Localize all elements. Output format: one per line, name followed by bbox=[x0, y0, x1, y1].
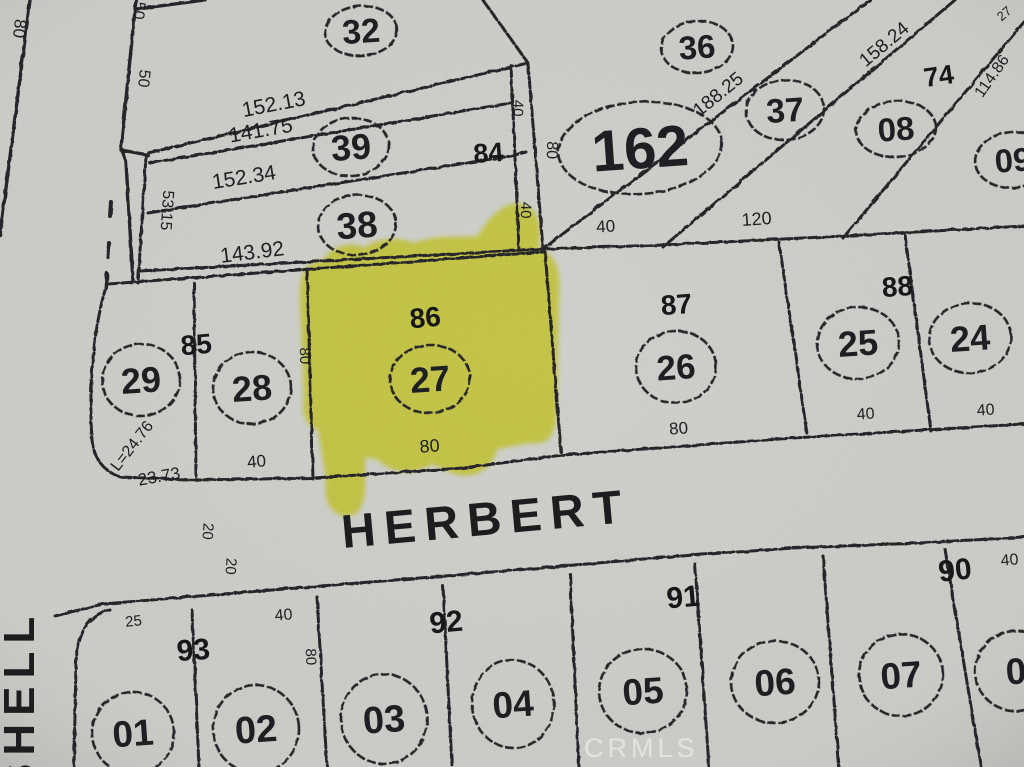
dimension-label: 40 bbox=[596, 217, 616, 237]
block-number: 86 bbox=[408, 301, 442, 335]
block-number: 87 bbox=[660, 288, 693, 321]
lot-number: 07 bbox=[879, 654, 923, 698]
lot-number: 38 bbox=[335, 204, 379, 248]
lot-number: 27 bbox=[409, 357, 452, 401]
lot-number: 162 bbox=[590, 113, 691, 185]
lot-number: 03 bbox=[362, 698, 407, 743]
dimension-label: 80 bbox=[296, 347, 314, 364]
dimension-label: 80 bbox=[669, 418, 689, 438]
dimension-label: 80 bbox=[543, 141, 561, 159]
plat-map-canvas: 3239383637080916229282726252401020304050… bbox=[0, 0, 1024, 767]
block-number: 84 bbox=[472, 137, 504, 169]
dimension-label: 80 bbox=[419, 435, 440, 456]
dimension-label: 120 bbox=[741, 208, 772, 230]
dimension-label: 40 bbox=[1000, 551, 1019, 569]
lot-number: 39 bbox=[330, 125, 373, 169]
block-number: 74 bbox=[922, 59, 956, 93]
dimension-label: 53.15 bbox=[157, 190, 177, 231]
dimension-label: 40 bbox=[246, 451, 267, 472]
lot-number: 29 bbox=[120, 358, 163, 402]
dimension-label: 20 bbox=[221, 557, 239, 575]
lot-number: 09 bbox=[993, 140, 1024, 179]
lot-number: 26 bbox=[655, 347, 697, 389]
dimension-label: 80 bbox=[9, 18, 30, 39]
block-number: 90 bbox=[937, 552, 974, 588]
dimension-label: 40 bbox=[856, 405, 875, 423]
dimension-label: 50 bbox=[134, 69, 153, 89]
lot-number: 04 bbox=[491, 683, 535, 727]
dimension-label: 20 bbox=[198, 522, 216, 540]
lot-number: 02 bbox=[234, 708, 279, 753]
dimension-label: 25 bbox=[124, 612, 142, 631]
lot-number: 06 bbox=[753, 661, 797, 705]
lot-number: 01 bbox=[111, 712, 155, 756]
block-number: 85 bbox=[179, 328, 213, 362]
dimension-label: 40 bbox=[509, 100, 527, 117]
dimension-label: 40 bbox=[274, 606, 293, 624]
block-number: 92 bbox=[428, 605, 464, 641]
lot-number: 08 bbox=[876, 109, 915, 148]
dimension-label: 40 bbox=[517, 202, 535, 219]
lot-number: 05 bbox=[621, 670, 665, 714]
watermark-layer: CRMLS bbox=[584, 733, 699, 763]
dimension-label: 80 bbox=[302, 648, 320, 665]
block-number: 88 bbox=[881, 270, 914, 303]
lot-number: 0 bbox=[1004, 650, 1024, 692]
lot-number: 25 bbox=[837, 321, 880, 365]
lot-number: 28 bbox=[231, 366, 274, 410]
lot-number: 37 bbox=[765, 91, 805, 132]
street-label-shell: SHELL bbox=[0, 609, 44, 767]
dimension-label: 50 bbox=[129, 1, 148, 21]
plat-map: 3239383637080916229282726252401020304050… bbox=[0, 0, 1024, 767]
lot-number: 24 bbox=[949, 316, 992, 360]
block-number: 91 bbox=[665, 580, 701, 616]
lot-number: 36 bbox=[677, 27, 716, 66]
block-number: 93 bbox=[176, 633, 212, 668]
lot-number: 32 bbox=[341, 12, 381, 53]
dimension-label: 40 bbox=[976, 401, 995, 419]
watermark: CRMLS bbox=[584, 733, 699, 763]
